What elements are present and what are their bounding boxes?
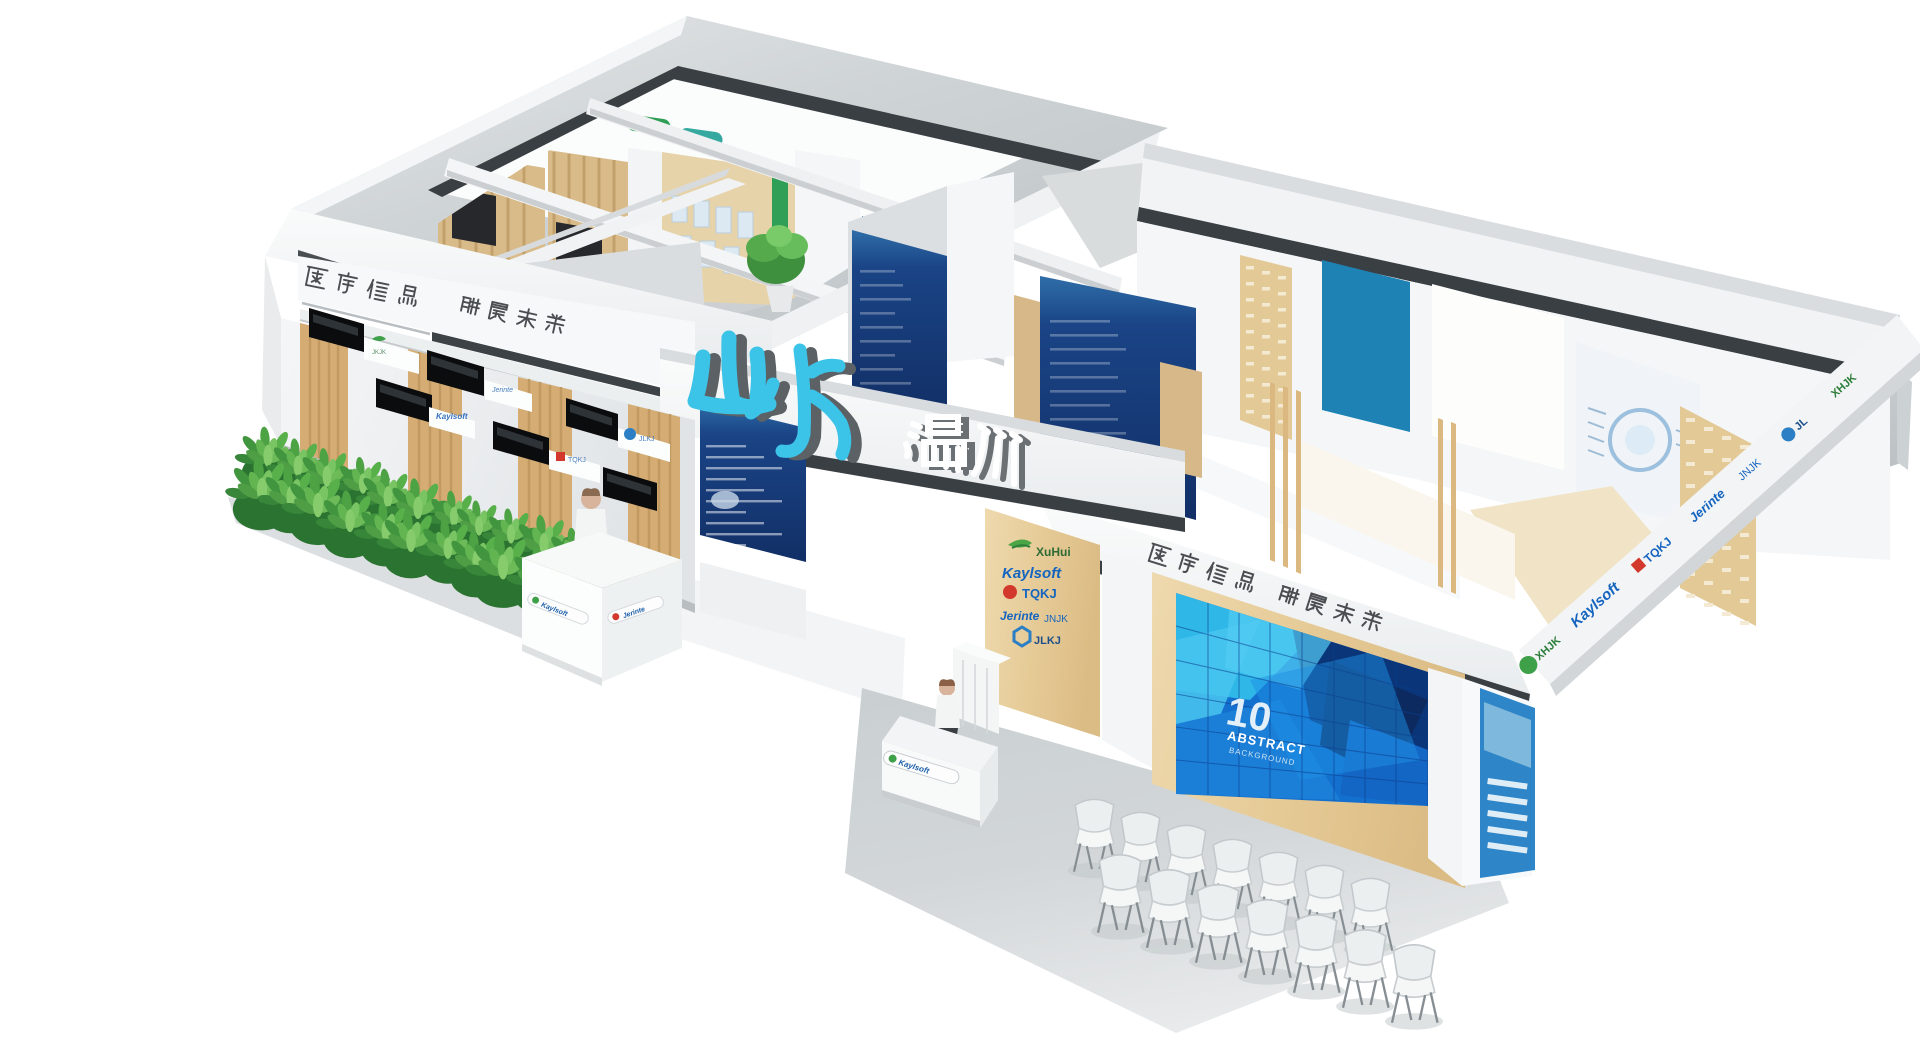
svg-text:TQKJ: TQKJ [568, 457, 586, 464]
svg-text:Jerinte: Jerinte [1000, 609, 1040, 623]
svg-text:Jerinte: Jerinte [491, 387, 513, 394]
svg-text:JLKJ: JLKJ [1034, 635, 1061, 647]
svg-text:JKJK: JKJK [372, 350, 386, 356]
svg-text:TQKJ: TQKJ [1022, 586, 1057, 601]
svg-text:XuHui: XuHui [1036, 545, 1071, 559]
svg-text:JLKJ: JLKJ [639, 436, 655, 443]
svg-text:JNJK: JNJK [1044, 614, 1068, 625]
svg-text:Kaylsoft: Kaylsoft [1002, 565, 1062, 582]
svg-text:Kaylsoft: Kaylsoft [436, 412, 468, 421]
